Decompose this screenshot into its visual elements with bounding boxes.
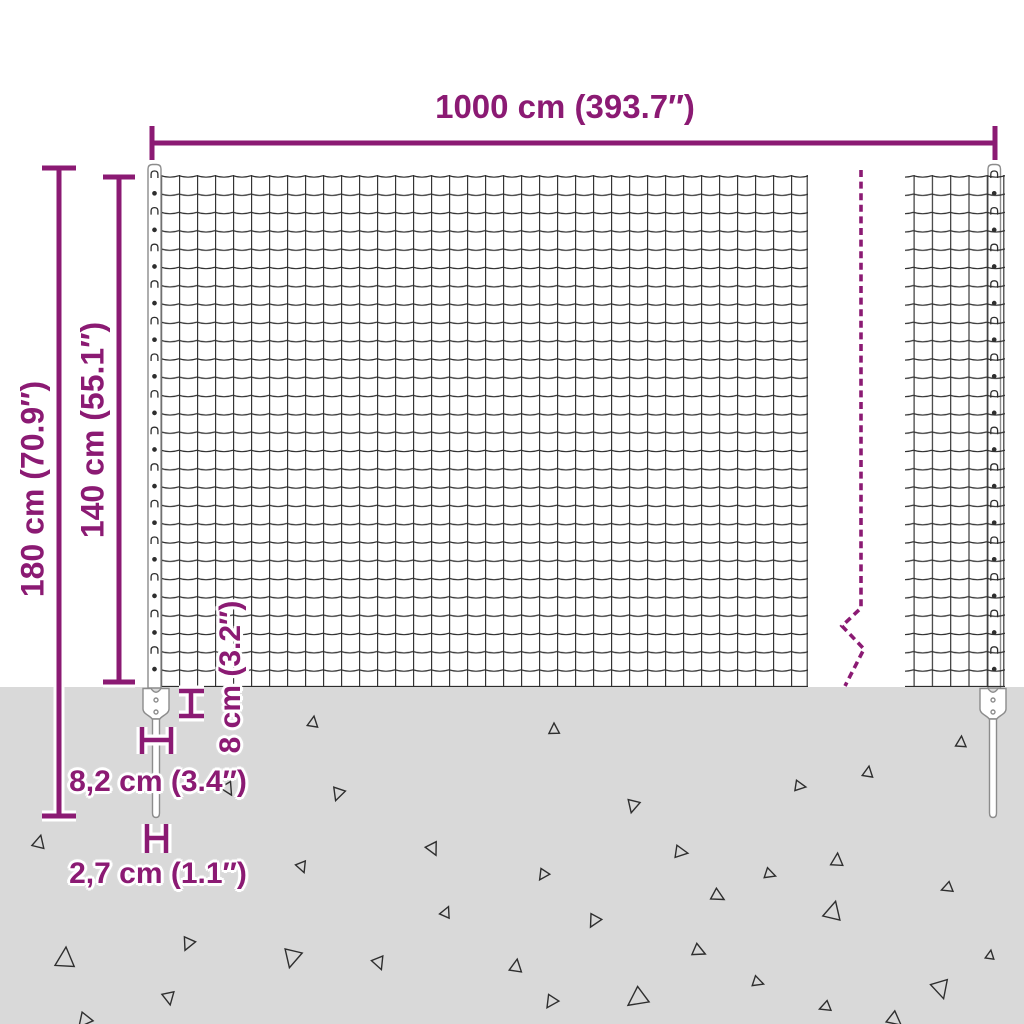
post-rivet-dot bbox=[993, 338, 996, 341]
post-rivet-dot bbox=[993, 192, 996, 195]
post-rivet-dot bbox=[153, 558, 156, 561]
post-rivet-dot bbox=[153, 411, 156, 414]
fence-post-left bbox=[148, 165, 161, 689]
anchor-hole bbox=[991, 698, 995, 702]
post-rivet-dot bbox=[153, 192, 156, 195]
post-rivet-dot bbox=[153, 521, 156, 524]
post-rivet-dot bbox=[153, 448, 156, 451]
post-rivet-dot bbox=[993, 558, 996, 561]
post-rivet-dot bbox=[993, 484, 996, 487]
dimension-label-total-height: 180 cm (70.9″) bbox=[15, 381, 52, 597]
wire-mesh-left-section bbox=[161, 175, 808, 687]
dimension-label-total-width: 1000 cm (393.7″) bbox=[435, 88, 695, 126]
dimension-width-total bbox=[152, 126, 995, 160]
product-dimension-diagram: 1000 cm (393.7″) 180 cm (70.9″) 140 cm (… bbox=[0, 0, 1024, 1024]
dimension-label-mesh-height: 140 cm (55.1″) bbox=[75, 322, 112, 538]
anchor-spike-right bbox=[990, 719, 997, 818]
dimension-label-spike-width: 2,7 cm (1.1″) bbox=[69, 857, 247, 891]
post-rivet-dot bbox=[993, 265, 996, 268]
post-rivet-dot bbox=[993, 667, 996, 670]
post-rivet-dot bbox=[993, 375, 996, 378]
anchor-hole bbox=[154, 710, 158, 714]
post-rivet-dot bbox=[153, 265, 156, 268]
anchor-hole bbox=[991, 710, 995, 714]
post-rivet-dot bbox=[153, 301, 156, 304]
post-rivet-dot bbox=[993, 631, 996, 634]
wire-mesh-right-section bbox=[905, 175, 1005, 687]
anchor-hole bbox=[154, 698, 158, 702]
post-rivet-dot bbox=[993, 448, 996, 451]
post-rivet-dot bbox=[153, 484, 156, 487]
post-rivet-dot bbox=[993, 594, 996, 597]
break-line bbox=[842, 170, 864, 686]
post-rivet-dot bbox=[153, 375, 156, 378]
post-rivet-dot bbox=[993, 301, 996, 304]
post-rivet-dot bbox=[153, 338, 156, 341]
post-rivet-dot bbox=[993, 228, 996, 231]
dimension-label-anchor-depth: 8 cm (3.2″) bbox=[214, 601, 248, 754]
post-rivet-dot bbox=[993, 411, 996, 414]
post-rivet-dot bbox=[153, 667, 156, 670]
post-rivet-dot bbox=[153, 631, 156, 634]
dimension-label-anchor-width: 8,2 cm (3.4″) bbox=[69, 765, 247, 799]
post-rivet-dot bbox=[153, 228, 156, 231]
post-rivet-dot bbox=[993, 521, 996, 524]
post-rivet-dot bbox=[153, 594, 156, 597]
